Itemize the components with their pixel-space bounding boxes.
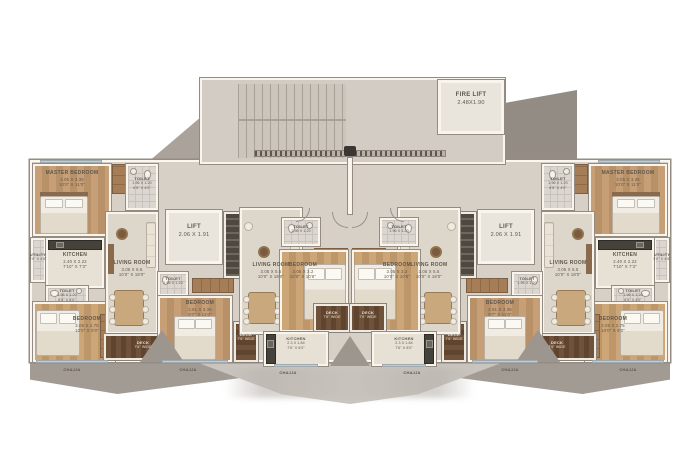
- room-dim-m: 1.96 X 1.20: [154, 281, 192, 286]
- label-master-bedroom-right: MASTER BEDROOM 3.05 X 3.35 10'0" X 11'0": [594, 170, 662, 187]
- chajja-text: CHAJJA: [490, 367, 530, 372]
- label-living-room-end-left: LIVING ROOM 3.05 X 5.5 10'0" X 18'0": [106, 260, 158, 277]
- room-dim-ft: 6'5" X 4'0": [124, 186, 160, 191]
- room-dim-ft: 6'5" X 4'0": [46, 298, 88, 303]
- room-name: FIRE LIFT: [440, 92, 502, 100]
- room-dim-ft: 10'0" X 10'6": [280, 274, 326, 279]
- room-dim-ft: 6'5" X 4'0": [612, 298, 654, 303]
- room-dim-ft: 9'7" X 11'0": [170, 312, 230, 317]
- room-dim-ft: 7'10" X 7'3": [46, 264, 104, 269]
- label-kitchen-center-right: KITCHEN 2.3 X 1.84 7'6" X 6'0": [374, 336, 434, 351]
- room-name: LIVING ROOM: [106, 260, 158, 267]
- label-deck-mid-right: DECK 7'6" WIDE: [442, 332, 466, 342]
- room-dim-ft: 3'0" X 4'6": [651, 257, 673, 262]
- room-dim-ft: 7'6" X 6'0": [266, 346, 326, 351]
- chajja-text: CHAJJA: [392, 370, 432, 375]
- room-dim-ft: 9'7" X 11'0": [470, 312, 530, 317]
- label-deck-end-right: DECK 7'6" WIDE: [518, 340, 596, 350]
- label-toilet-mid-right: TOILET 1.96 X 1.20: [508, 276, 546, 286]
- room-dim-ft: 7'6" WIDE: [518, 345, 596, 350]
- room-dim-m: 2.06 X 1.91: [166, 232, 222, 239]
- room-dim-ft: 10'0" X 10'6": [374, 274, 420, 279]
- room-dim-ft: 3'0" X 4'6": [27, 257, 49, 262]
- room-dim-m: 2.06 X 1.91: [478, 232, 534, 239]
- label-deck-center-right: DECK 7'6" WIDE: [350, 310, 386, 320]
- chajja-text: CHAJJA: [168, 367, 208, 372]
- room-name: MASTER BEDROOM: [38, 170, 106, 177]
- label-living-room-end-right: LIVING ROOM 3.05 X 5.5 10'0" X 18'0": [542, 260, 594, 277]
- room-name: LIVING ROOM: [542, 260, 594, 267]
- room-dim-ft: 7'6" WIDE: [314, 315, 350, 320]
- room-dim-ft: 7'6" WIDE: [104, 345, 182, 350]
- label-lift-right: LIFT 2.06 X 1.91: [478, 224, 534, 239]
- label-toilet-mid-low-right: TOILET 1.96 X 1.20 6'5" X 4'0": [612, 288, 654, 303]
- label-chajja-4: CHAJJA: [392, 370, 432, 375]
- room-dim-ft: 6'5" X 4'0": [540, 186, 576, 191]
- label-bedroom-mid-right: BEDROOM 2.91 X 3.35 9'7" X 11'0": [470, 300, 530, 317]
- floor-plan-canvas: FIRE LIFT 2.48x1.90 LIFT 2.06 X 1.91 LIF…: [0, 0, 700, 461]
- room-name: LIFT: [478, 224, 534, 232]
- label-chajja-3: CHAJJA: [268, 370, 308, 375]
- label-toilet-top-left: TOILET 1.96 X 1.20 6'5" X 4'0": [124, 176, 160, 191]
- label-fire-lift: FIRE LIFT 2.48x1.90: [440, 92, 502, 107]
- label-utility-right: UTILITY 3'0" X 4'6": [651, 252, 673, 262]
- room-dim-ft: 10'0" X 11'0": [594, 182, 662, 187]
- room-dim-ft: 7'6" WIDE: [234, 337, 258, 342]
- label-bedroom-corner-left: BEDROOM 3.05 X 2.75 10'0" X 9'0": [62, 316, 112, 333]
- label-deck-end-left: DECK 7'6" WIDE: [104, 340, 182, 350]
- room-dim-ft: 10'0" X 18'0": [542, 272, 594, 277]
- room-name: MASTER BEDROOM: [594, 170, 662, 177]
- room-dim-ft: 7'6" WIDE: [350, 315, 386, 320]
- label-chajja-1: CHAJJA: [52, 367, 92, 372]
- room-dim-ft: 7'6" WIDE: [442, 337, 466, 342]
- room-dim-ft: 7'10" X 7'3": [596, 264, 654, 269]
- label-utility-left: UTILITY 3'0" X 4'6": [27, 252, 49, 262]
- label-toilet-mid-low-left: TOILET 1.96 X 1.20 6'5" X 4'0": [46, 288, 88, 303]
- room-dim-ft: 10'0" X 18'0": [106, 272, 158, 277]
- label-chajja-2: CHAJJA: [168, 367, 208, 372]
- room-dim-m: 1.96 X 1.20: [380, 229, 418, 234]
- label-bedroom-center-left: BEDROOM 3.05 X 3.2 10'0" X 10'6": [280, 262, 326, 279]
- label-kitchen-left: KITCHEN 2.40 X 2.22 7'10" X 7'3": [46, 252, 104, 269]
- label-master-bedroom-left: MASTER BEDROOM 3.05 X 3.35 10'0" X 11'0": [38, 170, 106, 187]
- label-deck-center-left: DECK 7'6" WIDE: [314, 310, 350, 320]
- room-dim-m: 1.96 X 1.20: [508, 281, 546, 286]
- room-name: LIFT: [166, 224, 222, 232]
- chajja-text: CHAJJA: [268, 370, 308, 375]
- label-bedroom-corner-right: BEDROOM 3.05 X 2.75 10'0" X 9'0": [588, 316, 638, 333]
- label-toilet-mid-left: TOILET 1.96 X 1.20: [154, 276, 192, 286]
- chajja-text: CHAJJA: [52, 367, 92, 372]
- room-dim-m: 1.96 X 1.20: [282, 229, 320, 234]
- label-deck-mid-left: DECK 7'6" WIDE: [234, 332, 258, 342]
- chajja-text: CHAJJA: [608, 367, 648, 372]
- label-chajja-5: CHAJJA: [490, 367, 530, 372]
- room-dim-m: 2.48x1.90: [440, 100, 502, 107]
- label-bedroom-mid-left: BEDROOM 2.91 X 3.35 9'7" X 11'0": [170, 300, 230, 317]
- room-dim-ft: 7'6" X 6'0": [374, 346, 434, 351]
- label-toilet-center-left: TOILET 1.96 X 1.20: [282, 224, 320, 234]
- label-bedroom-center-right: BEDROOM 3.05 X 3.2 10'0" X 10'6": [374, 262, 420, 279]
- label-kitchen-center-left: KITCHEN 2.3 X 1.84 7'6" X 6'0": [266, 336, 326, 351]
- room-dim-ft: 10'0" X 9'0": [62, 328, 112, 333]
- room-dim-ft: 10'0" X 9'0": [588, 328, 638, 333]
- label-kitchen-right: KITCHEN 2.40 X 2.22 7'10" X 7'3": [596, 252, 654, 269]
- room-dim-ft: 10'0" X 11'0": [38, 182, 106, 187]
- label-lift-left: LIFT 2.06 X 1.91: [166, 224, 222, 239]
- label-chajja-6: CHAJJA: [608, 367, 648, 372]
- label-layer: FIRE LIFT 2.48x1.90 LIFT 2.06 X 1.91 LIF…: [0, 0, 700, 461]
- label-toilet-center-right: TOILET 1.96 X 1.20: [380, 224, 418, 234]
- label-toilet-top-right: TOILET 1.96 X 1.20 6'5" X 4'0": [540, 176, 576, 191]
